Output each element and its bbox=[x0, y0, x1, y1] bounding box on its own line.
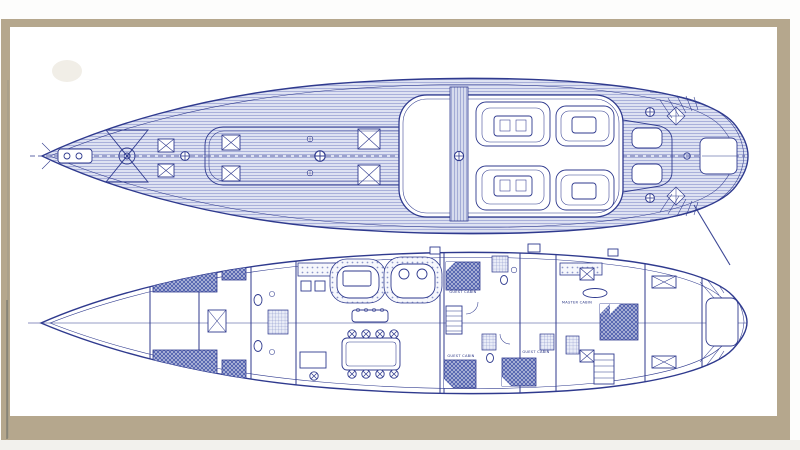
transom-locker bbox=[706, 298, 738, 346]
primary-winch bbox=[646, 108, 655, 117]
cockpit-deckhouse bbox=[399, 87, 623, 221]
guest-shower bbox=[482, 334, 496, 350]
deck-vent bbox=[608, 249, 618, 256]
aft-stairs bbox=[594, 354, 614, 384]
yacht-plan-drawing: GUEST CABIN MASTER CABIN GUEST CABIN GUE… bbox=[0, 0, 800, 450]
crew-toilet bbox=[254, 295, 262, 306]
master-shower bbox=[566, 336, 579, 354]
guest-shower bbox=[540, 334, 554, 350]
cockpit-table bbox=[494, 176, 532, 196]
cockpit-bench-forward-starboard bbox=[476, 166, 550, 210]
label-forward-guest-cabin: GUEST CABIN bbox=[449, 290, 476, 294]
cockpit-bench-forward-port bbox=[476, 102, 550, 146]
helm-console bbox=[632, 164, 662, 184]
guest-shower bbox=[492, 256, 508, 272]
sideboard bbox=[352, 310, 388, 322]
crew-toilet bbox=[254, 341, 262, 352]
deck-winch bbox=[307, 136, 313, 142]
dining-table bbox=[342, 338, 400, 370]
guest-toilet bbox=[501, 276, 508, 285]
cockpit-table bbox=[494, 116, 532, 136]
deck-winch bbox=[307, 170, 313, 176]
label-aft-guest-cabin-2: GUEST CABIN bbox=[522, 350, 549, 354]
label-aft-guest-cabin-1: GUEST CABIN bbox=[447, 354, 474, 358]
foremast bbox=[181, 152, 190, 161]
cockpit-bench-aft-port bbox=[556, 106, 614, 146]
master-bed bbox=[600, 304, 638, 340]
label-master-cabin: MASTER CABIN bbox=[562, 301, 592, 305]
guest-bed bbox=[502, 358, 536, 386]
guest-toilet bbox=[487, 354, 494, 363]
main-mast bbox=[315, 151, 325, 161]
cockpit-bench-aft-starboard bbox=[556, 170, 614, 210]
guest-bed bbox=[446, 262, 480, 290]
primary-winch bbox=[646, 194, 655, 203]
watermark-smudge bbox=[52, 60, 82, 82]
deck-vent bbox=[528, 244, 540, 252]
master-table bbox=[583, 289, 607, 298]
helm-console bbox=[632, 128, 662, 148]
crew-shower bbox=[268, 310, 288, 334]
nav-desk bbox=[300, 352, 326, 368]
coffee-table bbox=[343, 271, 371, 286]
yacht-plan-sheet: GUEST CABIN MASTER CABIN GUEST CABIN GUE… bbox=[0, 0, 800, 450]
deck-vent bbox=[430, 247, 440, 254]
mizzen-mast bbox=[454, 151, 463, 160]
companionway-stairs bbox=[446, 306, 462, 334]
